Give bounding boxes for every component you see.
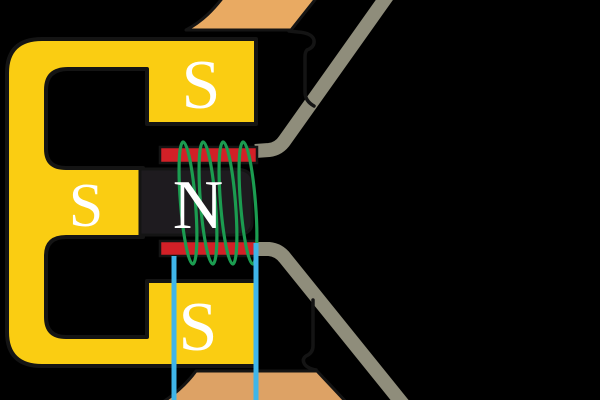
bottom-pole-label: S xyxy=(179,289,218,366)
middle-pole-label: S xyxy=(69,172,103,240)
surround-top xyxy=(186,0,318,30)
top-pole-label: S xyxy=(182,47,221,124)
center-pole-label: N xyxy=(173,167,224,244)
loudspeaker-diagram: S S S N xyxy=(0,0,600,400)
frame-outline-bottom xyxy=(303,300,316,370)
